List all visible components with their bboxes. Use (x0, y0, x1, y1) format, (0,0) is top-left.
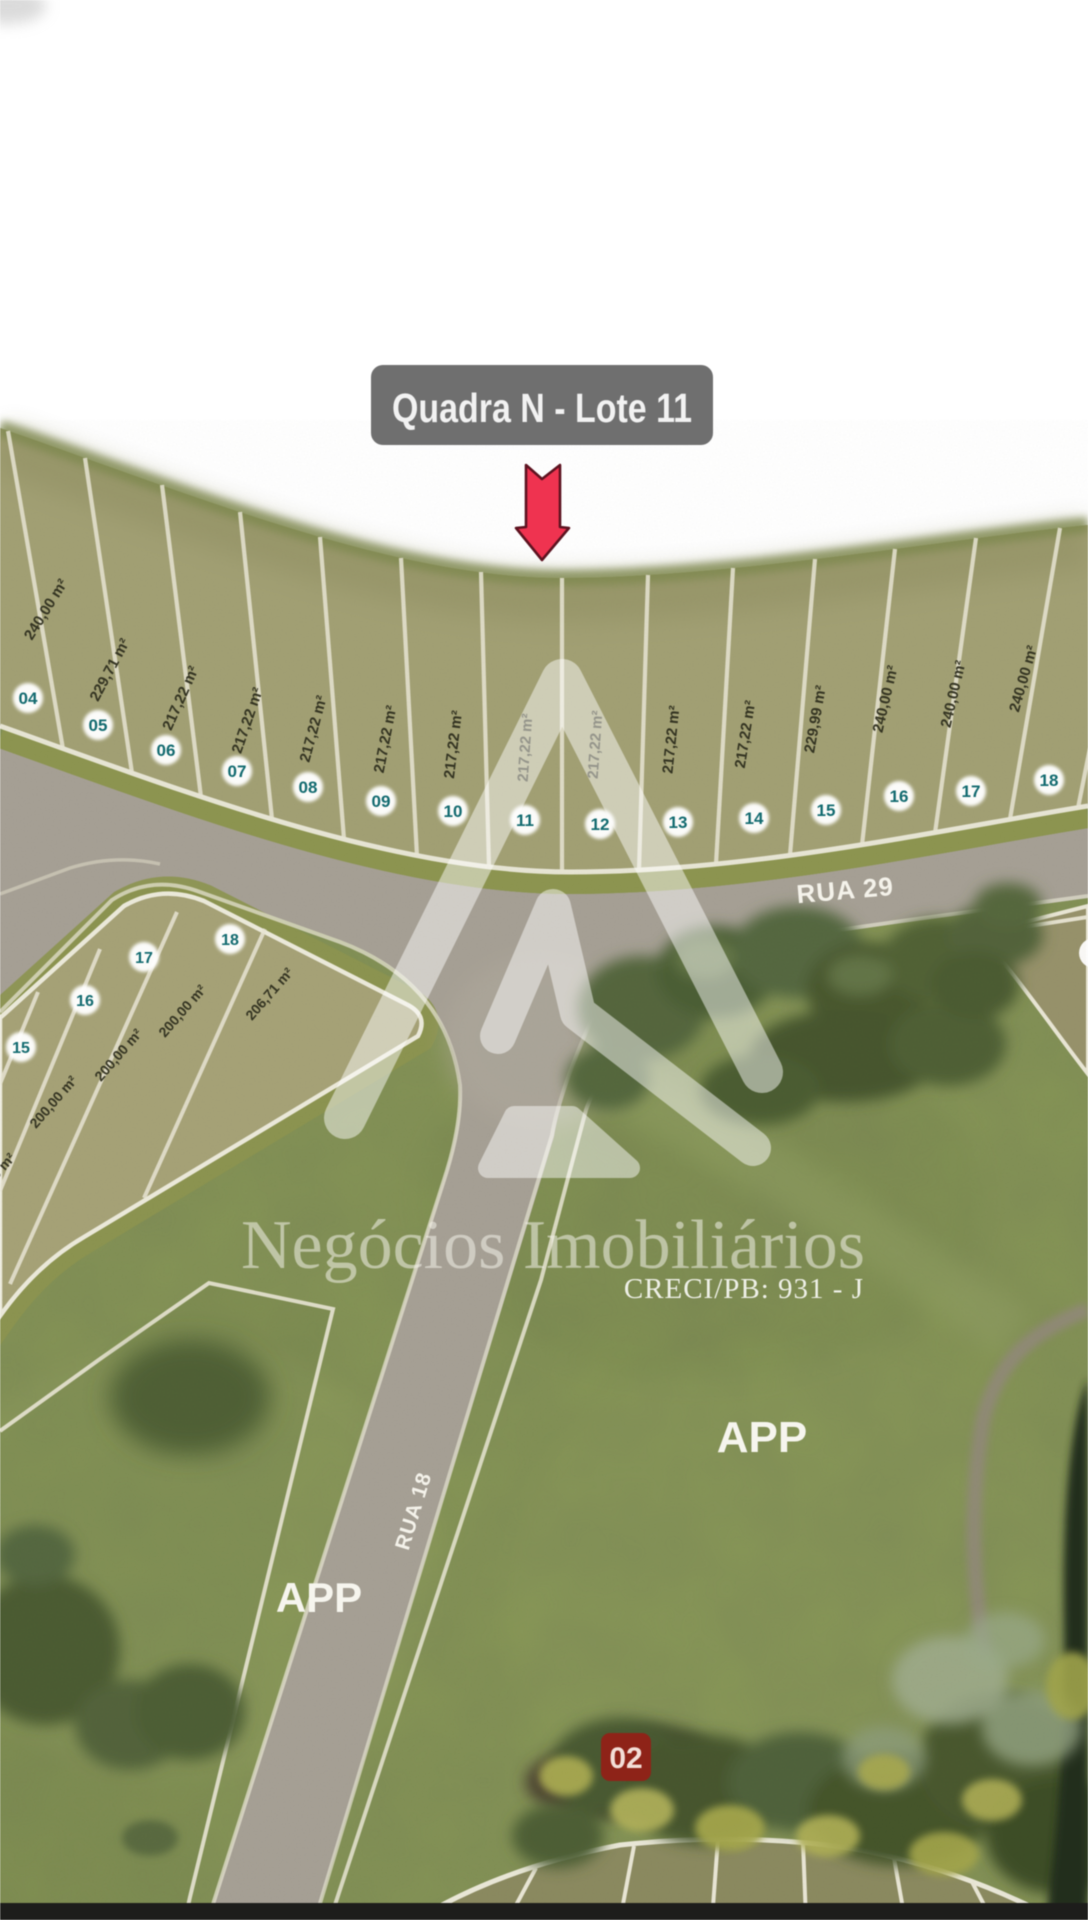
svg-text:15: 15 (12, 1040, 30, 1057)
svg-text:02: 02 (609, 1742, 642, 1775)
svg-text:14: 14 (745, 809, 764, 828)
svg-text:APP: APP (276, 1574, 362, 1621)
svg-text:07: 07 (228, 762, 247, 781)
svg-text:17: 17 (135, 950, 153, 967)
svg-text:17: 17 (962, 782, 981, 801)
svg-text:08: 08 (299, 778, 318, 797)
svg-text:04: 04 (19, 689, 38, 708)
svg-text:06: 06 (157, 741, 176, 760)
svg-text:18: 18 (1040, 771, 1059, 790)
svg-text:10: 10 (444, 802, 463, 821)
svg-text:18: 18 (221, 932, 239, 949)
svg-text:15: 15 (817, 801, 836, 820)
svg-text:APP: APP (717, 1413, 807, 1462)
svg-text:16: 16 (76, 993, 94, 1010)
svg-text:12: 12 (591, 815, 610, 834)
svg-text:05: 05 (89, 716, 108, 735)
svg-text:09: 09 (372, 792, 391, 811)
svg-text:CRECI/PB: 931 - J: CRECI/PB: 931 - J (624, 1273, 864, 1305)
svg-text:16: 16 (890, 787, 909, 806)
svg-text:13: 13 (669, 813, 688, 832)
svg-text:Quadra N - Lote 11: Quadra N - Lote 11 (392, 385, 692, 431)
